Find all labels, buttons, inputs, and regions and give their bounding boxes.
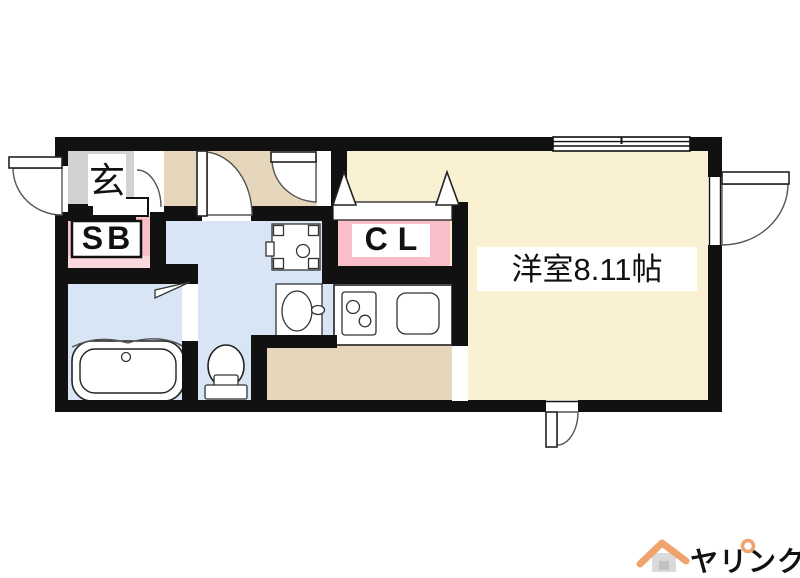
washer-pan-corner [309,259,319,269]
washer-pan-corner [309,226,319,236]
logo-circle-accent [743,541,754,552]
kitchen-floor [260,340,456,404]
washer-pan-corner [274,226,284,236]
wall-segment [322,212,338,270]
bathroom-door-opening [182,284,198,341]
bathtub [72,339,184,401]
kitchen-sink-icon [397,293,439,334]
wall-segment [578,400,722,412]
shoe-box-label: SB [82,220,134,256]
washer-drain-icon [297,245,310,258]
wall-segment [708,245,722,412]
toilet-tank [205,385,247,399]
hall-door-leaf [271,152,316,162]
washbasin-faucet-icon [312,306,325,315]
hall-doorway-strip [317,148,333,208]
wall-segment [452,202,468,346]
stove-burner-icon [347,301,360,314]
wall-segment [708,137,722,177]
wall-segment [62,268,184,284]
wall-segment [55,212,68,412]
washbasin-bowl-icon [282,291,312,331]
kitchen-passage-opening [452,346,468,401]
entrance-door-leaf [9,157,62,168]
stove-burner-icon [359,315,371,327]
wall-segment [251,335,267,403]
wall-segment [55,137,553,151]
wall-segment [55,400,546,412]
bathtub-drain-icon [122,353,131,362]
washer-pan-corner [274,259,284,269]
washbasin [276,284,325,339]
balcony-door-leaf [722,172,789,184]
site-logo: ヤリンク [640,541,800,578]
toilet [205,345,247,399]
closet-label: CL [365,221,428,257]
stove-icon [342,292,376,335]
washroom-door-leaf [197,151,207,216]
floor-plan-drawing: 玄 SB CL 洋室8.11帖 ヤリンク [0,0,800,578]
wall-segment [322,266,468,284]
rear-door-leaf [546,412,557,447]
floor-plan-page: 玄 SB CL 洋室8.11帖 ヤリンク [0,0,800,578]
washer-faucet-icon [266,242,274,256]
wall-segment [182,341,198,403]
entrance-label: 玄 [89,160,125,201]
logo-house-window-icon [659,561,669,570]
kitchen-counter [334,285,452,345]
main-room-label: 洋室8.11帖 [511,252,662,287]
top-window [553,137,690,151]
washing-machine-pan [266,224,320,270]
